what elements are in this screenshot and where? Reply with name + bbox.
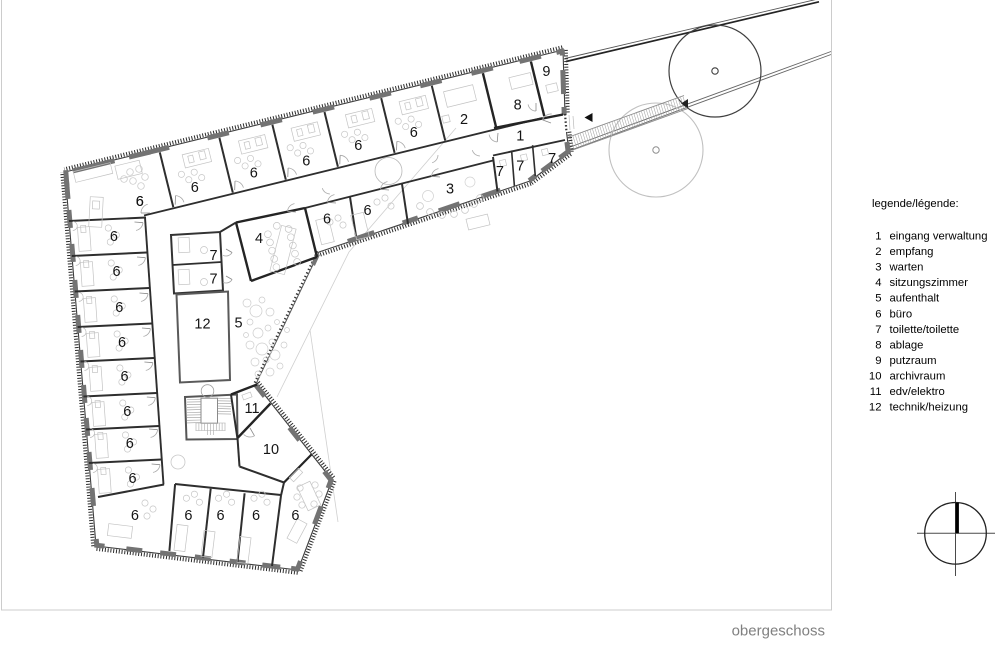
svg-text:3: 3 [446, 181, 454, 197]
svg-text:ablage: ablage [890, 339, 924, 351]
svg-text:10: 10 [869, 371, 882, 383]
svg-text:3: 3 [875, 262, 881, 274]
svg-text:6: 6 [191, 180, 199, 196]
svg-text:4: 4 [875, 277, 881, 289]
svg-text:11: 11 [244, 401, 259, 417]
svg-text:6: 6 [126, 436, 134, 452]
svg-text:11: 11 [870, 386, 882, 398]
svg-text:6: 6 [363, 203, 371, 219]
svg-text:6: 6 [113, 264, 121, 280]
svg-text:büro: büro [890, 308, 913, 320]
svg-text:empfang: empfang [890, 246, 934, 258]
svg-text:1: 1 [516, 129, 524, 145]
svg-text:9: 9 [542, 64, 550, 80]
svg-text:archivraum: archivraum [890, 371, 946, 383]
svg-text:7: 7 [875, 324, 881, 336]
svg-text:6: 6 [354, 138, 362, 154]
svg-text:9: 9 [875, 355, 881, 367]
svg-text:toilette/toilette: toilette/toilette [890, 324, 960, 336]
svg-text:6: 6 [217, 508, 225, 524]
svg-text:10: 10 [263, 442, 279, 458]
svg-text:6: 6 [302, 154, 310, 170]
svg-text:6: 6 [136, 194, 144, 210]
svg-text:6: 6 [252, 508, 260, 524]
svg-text:obergeschoss: obergeschoss [732, 623, 825, 640]
svg-text:sitzungszimmer: sitzungszimmer [890, 277, 969, 289]
svg-text:12: 12 [194, 317, 210, 333]
svg-text:8: 8 [875, 339, 881, 351]
svg-text:6: 6 [250, 166, 258, 182]
svg-text:6: 6 [291, 508, 299, 524]
svg-text:7: 7 [209, 248, 217, 264]
svg-text:edv/elektro: edv/elektro [890, 386, 945, 398]
svg-text:putzraum: putzraum [890, 355, 937, 367]
svg-text:5: 5 [235, 316, 243, 332]
svg-text:7: 7 [496, 164, 504, 180]
svg-text:7: 7 [516, 159, 524, 175]
svg-text:6: 6 [118, 335, 126, 351]
svg-text:legende/légende:: legende/légende: [872, 198, 959, 210]
svg-text:6: 6 [110, 229, 118, 245]
svg-text:6: 6 [875, 308, 881, 320]
svg-text:8: 8 [514, 98, 522, 114]
svg-text:6: 6 [184, 508, 192, 524]
svg-text:warten: warten [889, 262, 924, 274]
svg-text:6: 6 [123, 404, 131, 420]
svg-text:6: 6 [115, 300, 123, 316]
svg-text:aufenthalt: aufenthalt [890, 293, 940, 305]
svg-text:12: 12 [869, 402, 882, 414]
svg-text:technik/heizung: technik/heizung [890, 402, 969, 414]
svg-text:6: 6 [410, 125, 418, 141]
svg-text:7: 7 [209, 272, 217, 288]
svg-text:6: 6 [128, 471, 136, 487]
svg-text:6: 6 [131, 508, 139, 524]
svg-text:4: 4 [255, 231, 263, 247]
svg-text:6: 6 [323, 212, 331, 228]
svg-text:5: 5 [875, 293, 881, 305]
svg-text:1: 1 [875, 231, 881, 243]
svg-text:7: 7 [548, 151, 556, 167]
svg-text:2: 2 [460, 112, 468, 128]
svg-text:2: 2 [875, 246, 881, 258]
svg-text:6: 6 [121, 369, 129, 385]
svg-text:eingang verwaltung: eingang verwaltung [890, 231, 988, 243]
